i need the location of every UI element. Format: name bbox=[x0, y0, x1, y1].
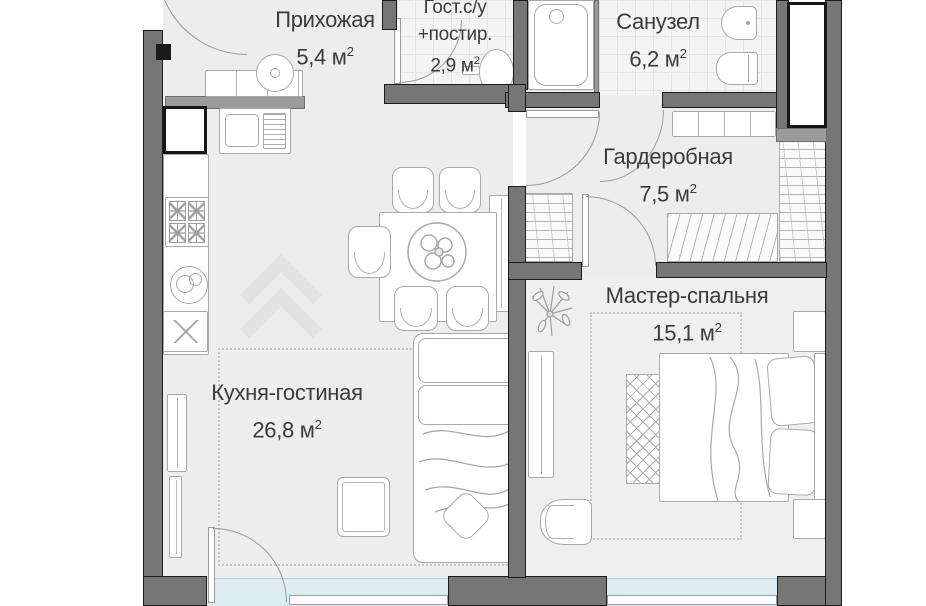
wall-kitchen-bedroom-divider bbox=[508, 186, 526, 578]
room-label-sanuzel: Санузел 6,2 м2 bbox=[600, 6, 716, 75]
room-name: Прихожая bbox=[250, 4, 400, 36]
room-area: 7,5 м2 bbox=[588, 173, 748, 210]
room-label-hallway: Прихожая 5,4 м2 bbox=[250, 4, 400, 73]
table-centerpiece bbox=[405, 216, 469, 288]
stove-burner-icon bbox=[169, 201, 186, 221]
room-area: 5,4 м2 bbox=[250, 36, 400, 73]
wall-corridor-bottom bbox=[508, 262, 582, 280]
wall-bottom-right bbox=[777, 576, 827, 606]
stove-burner-icon bbox=[188, 223, 205, 243]
wall-guestwc-bath bbox=[513, 0, 528, 90]
stove bbox=[165, 197, 209, 247]
plant bbox=[524, 284, 576, 340]
nightstand bbox=[793, 499, 826, 539]
room-area: 6,2 м2 bbox=[600, 38, 716, 75]
toilet bbox=[716, 52, 758, 85]
bed-pillow bbox=[767, 428, 818, 496]
nightstand bbox=[793, 311, 826, 352]
corridor-shelf bbox=[523, 193, 573, 262]
kitchen-bowls bbox=[170, 266, 208, 304]
bedroom-chair bbox=[540, 499, 592, 545]
room-area: 26,8 м2 bbox=[196, 409, 378, 446]
bathtub bbox=[528, 0, 594, 90]
radiator bbox=[169, 476, 182, 558]
wall-corridor-stub bbox=[508, 84, 526, 112]
room-name: Кухня-гостиная bbox=[196, 377, 378, 409]
dining-chair bbox=[439, 167, 481, 213]
room-label-guest-wc: Гост.с/у +постир. 2,9 м2 bbox=[398, 0, 512, 79]
bedroom-console bbox=[528, 351, 554, 478]
wardrobe-dresser bbox=[672, 111, 776, 137]
room-label-kitchen-living: Кухня-гостиная 26,8 м2 bbox=[196, 377, 378, 446]
stove-burner-icon bbox=[188, 201, 205, 221]
room-area: 2,9 м2 bbox=[398, 48, 512, 79]
wall-bedroom-top bbox=[656, 262, 827, 278]
bidet bbox=[721, 6, 757, 40]
dining-chair bbox=[392, 167, 434, 213]
room-name: Санузел bbox=[600, 6, 716, 38]
sink-basin bbox=[225, 114, 259, 147]
room-label-master-bedroom: Мастер-спальня 15,1 м2 bbox=[592, 280, 782, 349]
coffee-table bbox=[337, 477, 390, 537]
dining-chair bbox=[446, 286, 489, 331]
duct-shaft-kitchen bbox=[163, 106, 207, 154]
kitchen-sink-unit bbox=[219, 108, 291, 154]
wall-right bbox=[825, 0, 842, 606]
wall-bath-sanuzel bbox=[594, 0, 599, 94]
room-area: 15,1 м2 bbox=[592, 312, 782, 349]
room-label-wardrobe: Гардеробная 7,5 м2 bbox=[588, 141, 748, 210]
entrance-door-frame bbox=[156, 44, 171, 60]
wall-below-guestwc bbox=[384, 84, 515, 104]
bed-bench bbox=[626, 374, 660, 484]
wardrobe-shelves bbox=[779, 139, 826, 262]
room-name: Гост.с/у bbox=[398, 0, 512, 21]
duct-shaft-right bbox=[787, 2, 827, 128]
window-frame-right bbox=[607, 595, 777, 605]
room-name-line2: +постир. bbox=[398, 21, 512, 48]
window-frame-left bbox=[289, 595, 448, 605]
dining-chair bbox=[394, 286, 438, 331]
wall-below-sanuzel bbox=[662, 92, 777, 108]
sofa-cushion bbox=[418, 385, 516, 425]
room-name: Мастер-спальня bbox=[592, 280, 782, 312]
wardrobe-hanging-rail bbox=[667, 213, 778, 262]
dining-chair bbox=[348, 226, 391, 278]
stove-burner-icon bbox=[169, 223, 186, 243]
tv-console bbox=[167, 394, 187, 472]
wall-bottom-pier bbox=[448, 576, 607, 606]
wall-below-shaft bbox=[776, 128, 827, 142]
kitchen-cabinet-x bbox=[163, 311, 208, 352]
room-name: Гардеробная bbox=[588, 141, 748, 173]
sink-drainer bbox=[263, 113, 286, 149]
wall-left bbox=[143, 30, 163, 578]
wall-bottom-left bbox=[143, 576, 207, 606]
floor-plan: Прихожая 5,4 м2 Гост.с/у +постир. 2,9 м2… bbox=[0, 0, 926, 606]
bed-pillow bbox=[766, 355, 820, 427]
sofa-cushion bbox=[418, 338, 516, 383]
